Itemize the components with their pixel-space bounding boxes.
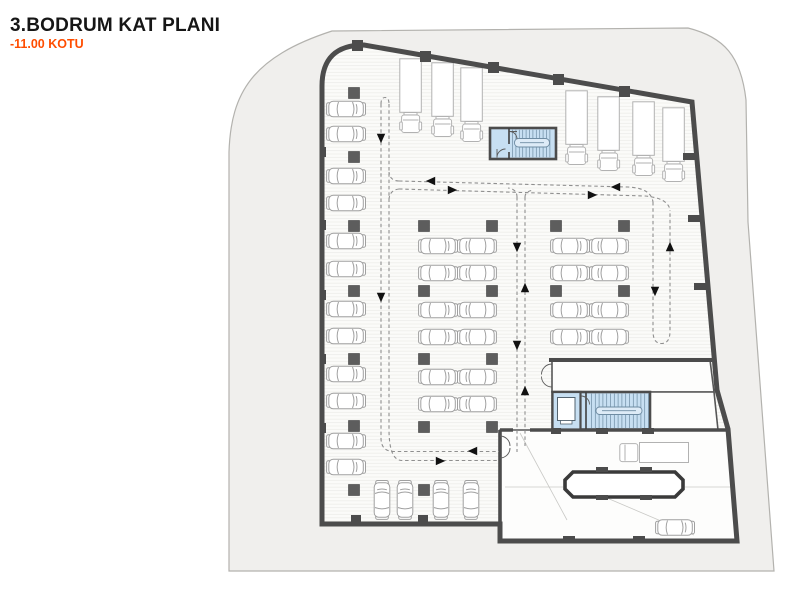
plan-drawing (0, 0, 800, 613)
stair-core-top (490, 128, 556, 159)
car (458, 329, 497, 345)
car (419, 265, 458, 281)
car (327, 328, 366, 344)
column (419, 354, 430, 365)
car (419, 302, 458, 318)
car (590, 302, 629, 318)
column (487, 221, 498, 232)
column (419, 286, 430, 297)
car (551, 265, 590, 281)
title-block: 3.BODRUM KAT PLANI -11.00 KOTU (10, 16, 220, 51)
column (619, 221, 630, 232)
truck (400, 59, 422, 133)
car (419, 396, 458, 412)
column (349, 485, 360, 496)
column (619, 286, 630, 297)
truck (620, 443, 689, 463)
column (349, 221, 360, 232)
car (327, 393, 366, 409)
car (419, 369, 458, 385)
car (458, 265, 497, 281)
car (327, 261, 366, 277)
car (327, 101, 366, 117)
car (327, 366, 366, 382)
column (349, 88, 360, 99)
car (590, 238, 629, 254)
car (327, 195, 366, 211)
column (551, 221, 562, 232)
car (551, 302, 590, 318)
car (327, 126, 366, 142)
service-room-right (650, 392, 718, 430)
car (551, 238, 590, 254)
car (327, 168, 366, 184)
car (327, 433, 366, 449)
column (419, 485, 430, 496)
car (419, 238, 458, 254)
car (656, 520, 695, 536)
car (327, 233, 366, 249)
column (419, 422, 430, 433)
column (487, 354, 498, 365)
truck (598, 97, 620, 171)
truck (461, 68, 483, 142)
column (419, 221, 430, 232)
stair-core-bottom (553, 392, 651, 430)
column (551, 286, 562, 297)
car (327, 459, 366, 475)
car (419, 329, 458, 345)
car (458, 396, 497, 412)
car (458, 302, 497, 318)
column (349, 421, 360, 432)
plan-elevation-label: -11.00 KOTU (10, 38, 220, 51)
truck (663, 108, 685, 182)
truck (633, 102, 655, 176)
car (397, 481, 413, 520)
car (458, 369, 497, 385)
car (463, 481, 479, 520)
column (487, 286, 498, 297)
truck (432, 63, 454, 137)
car (374, 481, 390, 520)
column (349, 354, 360, 365)
service-room-upper (549, 360, 714, 392)
car (458, 238, 497, 254)
car (551, 329, 590, 345)
floor-plan-sheet: 3.BODRUM KAT PLANI -11.00 KOTU (0, 0, 800, 613)
car (590, 265, 629, 281)
column (487, 422, 498, 433)
plan-title: 3.BODRUM KAT PLANI (10, 16, 220, 36)
car (327, 301, 366, 317)
car (590, 329, 629, 345)
column (349, 152, 360, 163)
car (433, 481, 449, 520)
ramp-opening (565, 467, 683, 500)
column (349, 286, 360, 297)
elevator (553, 392, 581, 430)
truck (566, 91, 588, 165)
